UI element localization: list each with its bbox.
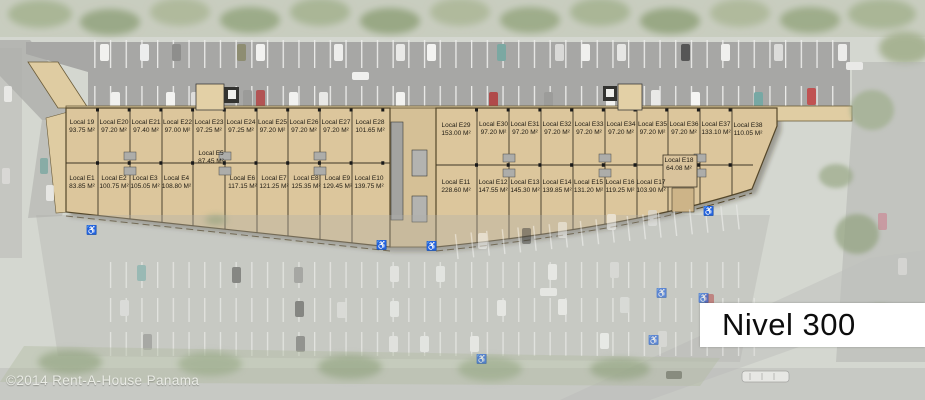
unit-area: 105.05 M² <box>130 183 159 191</box>
car-icon <box>522 228 531 244</box>
unit-label-e6: Local E6117.15 M² <box>227 175 258 190</box>
unit-id: Local E28 <box>356 119 385 127</box>
unit-area: 119.25 M² <box>606 187 635 195</box>
car-icon <box>2 168 10 184</box>
car-icon <box>581 44 590 61</box>
unit-area: 103.90 M² <box>636 187 665 195</box>
car-icon <box>172 44 181 61</box>
unit-id: Local E23 <box>195 119 224 127</box>
car-icon <box>610 262 619 278</box>
unit-area: 97.25 M² <box>228 127 254 135</box>
unit-area: 100.75 M² <box>99 183 128 191</box>
unit-area: 139.85 M² <box>542 187 571 195</box>
unit-area: 97.20 M² <box>512 129 538 137</box>
unit-area: 133.10 M² <box>701 129 730 137</box>
car-icon <box>389 336 398 352</box>
car-icon <box>427 44 436 61</box>
wheelchair-icon: ♿ <box>703 207 714 216</box>
wheelchair-icon: ♿ <box>656 289 667 298</box>
unit-area: 108.80 M² <box>162 183 191 191</box>
level-label-box: Nivel 300 <box>700 303 925 347</box>
unit-area: 110.05 M² <box>734 130 763 138</box>
car-icon <box>648 210 657 226</box>
unit-id: Local E31 <box>511 121 540 129</box>
unit-area: 97.00 M² <box>165 127 191 135</box>
car-icon <box>40 158 48 174</box>
wheelchair-icon: ♿ <box>426 242 437 251</box>
unit-id: Local E3 <box>132 175 157 183</box>
car-icon <box>540 288 557 296</box>
unit-label-e11: Local E11228.60 M² <box>436 179 476 194</box>
unit-label-e7: Local E7121.25 M² <box>258 175 290 190</box>
car-icon <box>774 44 783 61</box>
unit-id: Local E4 <box>164 175 189 183</box>
unit-area: 97.20 M² <box>291 127 317 135</box>
unit-label-e37: Local E37133.10 M² <box>700 121 732 136</box>
unit-id: Local E1 <box>69 175 94 183</box>
unit-label-e29: Local E29153.00 M² <box>434 122 478 137</box>
car-icon <box>607 214 616 230</box>
car-icon <box>617 44 626 61</box>
unit-area: 101.65 M² <box>355 127 384 135</box>
unit-label-e12: Local E12147.55 M² <box>477 179 509 194</box>
car-icon <box>558 299 567 315</box>
car-icon <box>555 44 564 61</box>
watermark: ©2014 Rent-A-House Panama <box>6 373 199 388</box>
unit-id: Local E22 <box>163 119 192 127</box>
unit-label-e21: Local E2197.40 M² <box>130 119 162 134</box>
unit-label-e25: Local E2597.20 M² <box>257 119 288 134</box>
unit-id: Local E17 <box>637 179 666 187</box>
unit-id: Local E25 <box>258 119 287 127</box>
level-label: Nivel 300 <box>700 307 856 343</box>
unit-area: 97.20 M² <box>260 127 286 135</box>
unit-id: Local E11 <box>442 179 470 187</box>
unit-area: 97.20 M² <box>323 127 349 135</box>
unit-id: Local E18 <box>665 157 694 165</box>
unit-id: Local E5 <box>198 150 223 158</box>
unit-area: 121.25 M² <box>259 183 288 191</box>
car-icon <box>237 44 246 61</box>
unit-id: Local E29 <box>442 122 471 130</box>
car-icon <box>100 44 109 61</box>
unit-label-e18: Local E1864.08 M² <box>662 157 696 172</box>
unit-id: Local E12 <box>479 179 508 187</box>
unit-label-e31: Local E3197.20 M² <box>509 121 541 136</box>
unit-area: 97.20 M² <box>544 129 570 137</box>
car-icon <box>681 44 690 61</box>
car-icon <box>620 297 629 313</box>
unit-label-e9: Local E9129.45 M² <box>322 175 353 190</box>
car-icon <box>137 265 146 281</box>
car-icon <box>256 90 265 107</box>
car-icon <box>420 336 429 352</box>
unit-area: 147.55 M² <box>478 187 507 195</box>
site-plan: Local 1993.75 M² Local E2097.20 M² Local… <box>0 0 925 400</box>
unit-label-e38: Local E38110.05 M² <box>730 122 766 137</box>
unit-id: Local E36 <box>670 121 699 129</box>
unit-id: Local E27 <box>322 119 351 127</box>
car-icon <box>120 300 129 316</box>
unit-area: 87.45 M² <box>198 158 224 166</box>
unit-label-e3: Local E3105.05 M² <box>130 175 160 190</box>
parking-stalls-rowC <box>105 298 755 322</box>
parking-lot-top <box>26 40 863 115</box>
unit-area: 139.75 M² <box>354 183 383 191</box>
unit-label-e26: Local E2697.20 M² <box>288 119 320 134</box>
car-icon <box>470 336 479 352</box>
unit-area: 97.20 M² <box>101 127 127 135</box>
car-icon <box>838 44 847 61</box>
unit-area: 97.20 M² <box>576 129 602 137</box>
wheelchair-icon: ♿ <box>476 355 487 364</box>
unit-id: Local E15 <box>574 179 603 187</box>
car-icon <box>558 222 567 238</box>
unit-id: Local E6 <box>230 175 255 183</box>
car-icon <box>721 44 730 61</box>
unit-id: Local E20 <box>100 119 129 127</box>
unit-id: Local E7 <box>261 175 286 183</box>
unit-label-e13: Local E13145.30 M² <box>509 179 541 194</box>
car-icon <box>390 266 399 282</box>
unit-id: Local E33 <box>575 121 604 129</box>
unit-label-e17: Local E17103.90 M² <box>636 179 666 194</box>
unit-id: Local E13 <box>511 179 540 187</box>
car-icon <box>651 90 660 107</box>
car-icon <box>497 44 506 61</box>
unit-area: 97.25 M² <box>196 127 222 135</box>
unit-label-e16: Local E16119.25 M² <box>604 179 636 194</box>
unit-area: 83.85 M² <box>69 183 95 191</box>
unit-id: Local E37 <box>702 121 731 129</box>
unit-id: Local E26 <box>290 119 319 127</box>
car-icon <box>658 331 667 347</box>
unit-label-e28: Local E28101.65 M² <box>352 119 388 134</box>
unit-label-e36: Local E3697.20 M² <box>668 121 700 136</box>
unit-id: Local E34 <box>607 121 636 129</box>
unit-id: Local E32 <box>543 121 572 129</box>
unit-label-e10: Local E10139.75 M² <box>353 175 385 190</box>
unit-id: Local E24 <box>227 119 256 127</box>
car-icon <box>256 44 265 61</box>
parking-stalls-rowB <box>105 262 745 288</box>
car-icon <box>4 86 12 102</box>
unit-label-e35: Local E3597.20 M² <box>637 121 668 136</box>
unit-label-e34: Local E3497.20 M² <box>605 121 637 136</box>
unit-label-e8: Local E8125.35 M² <box>290 175 322 190</box>
car-icon <box>296 336 305 352</box>
unit-label-e30: Local E3097.20 M² <box>478 121 509 136</box>
wheelchair-icon: ♿ <box>648 336 659 345</box>
car-icon <box>295 301 304 317</box>
unit-area: 97.20 M² <box>671 129 697 137</box>
unit-id: Local E8 <box>293 175 318 183</box>
unit-id: Local E16 <box>606 179 635 187</box>
car-icon <box>478 233 487 249</box>
unit-area: 228.60 M² <box>441 187 470 195</box>
unit-area: 97.20 M² <box>640 129 666 137</box>
tree-icon <box>850 90 894 130</box>
unit-label-local-19: Local 1993.75 M² <box>64 119 100 134</box>
unit-id: Local 19 <box>70 119 95 127</box>
unit-label-e24: Local E2497.25 M² <box>225 119 257 134</box>
car-icon <box>807 88 816 105</box>
unit-area: 97.40 M² <box>133 127 159 135</box>
unit-area: 117.15 M² <box>228 183 257 191</box>
car-icon <box>334 44 343 61</box>
unit-label-e32: Local E3297.20 M² <box>541 121 573 136</box>
unit-id: Local E38 <box>734 122 763 130</box>
unit-label-e5: Local E587.45 M² <box>194 150 228 165</box>
car-icon <box>878 213 887 230</box>
unit-id: Local E2 <box>101 175 126 183</box>
car-icon <box>352 72 369 80</box>
unit-area: 153.00 M² <box>441 130 470 138</box>
unit-label-e20: Local E2097.20 M² <box>98 119 130 134</box>
unit-area: 97.20 M² <box>481 129 507 137</box>
car-icon <box>846 62 863 70</box>
car-icon <box>497 300 506 316</box>
unit-label-e14: Local E14139.85 M² <box>541 179 573 194</box>
unit-area: 97.20 M² <box>608 129 634 137</box>
tree-icon <box>835 214 879 254</box>
parking-stalls-row1 <box>94 40 846 68</box>
unit-label-e2: Local E2100.75 M² <box>98 175 130 190</box>
car-icon <box>898 258 907 275</box>
car-icon <box>294 267 303 283</box>
car-icon <box>600 333 609 349</box>
unit-area: 93.75 M² <box>69 127 95 135</box>
car-icon <box>143 334 152 350</box>
unit-area: 145.30 M² <box>510 187 539 195</box>
parking-lot-bottom <box>36 204 770 362</box>
unit-area: 131.20 M² <box>574 187 603 195</box>
car-icon <box>243 90 252 107</box>
car-icon <box>396 44 405 61</box>
car-icon <box>140 44 149 61</box>
tree-icon <box>819 164 853 188</box>
unit-label-e15: Local E15131.20 M² <box>573 179 604 194</box>
car-icon <box>232 267 241 283</box>
car-icon <box>436 266 445 282</box>
unit-id: Local E10 <box>355 175 384 183</box>
wheelchair-icon: ♿ <box>86 226 97 235</box>
unit-id: Local E21 <box>132 119 161 127</box>
wheelchair-icon: ♿ <box>376 241 387 250</box>
unit-label-e23: Local E2397.25 M² <box>193 119 225 134</box>
unit-label-e4: Local E4108.80 M² <box>160 175 193 190</box>
unit-id: Local E14 <box>543 179 572 187</box>
unit-id: Local E30 <box>479 121 508 129</box>
car-icon <box>46 185 54 201</box>
car-icon <box>548 264 557 280</box>
unit-area: 125.35 M² <box>291 183 320 191</box>
unit-label-e33: Local E3397.20 M² <box>573 121 605 136</box>
bus-icon <box>742 371 789 382</box>
car-icon <box>390 301 399 317</box>
car-icon <box>337 302 346 318</box>
unit-id: Local E35 <box>638 121 667 129</box>
unit-id: Local E9 <box>325 175 350 183</box>
unit-label-e22: Local E2297.00 M² <box>162 119 193 134</box>
unit-area: 129.45 M² <box>323 183 352 191</box>
unit-area: 64.08 M² <box>666 165 692 173</box>
wheelchair-icon: ♿ <box>698 294 709 303</box>
unit-label-e27: Local E2797.20 M² <box>320 119 352 134</box>
unit-label-e1: Local E183.85 M² <box>64 175 100 190</box>
